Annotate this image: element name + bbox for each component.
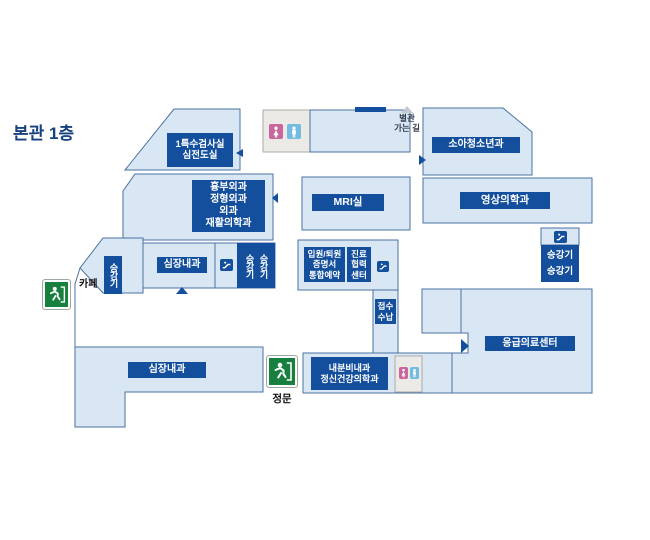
label-mri: MRI실 — [312, 194, 384, 211]
label-cardiology-upper: 심장내과 — [157, 257, 207, 273]
male-restroom-icon — [287, 124, 301, 139]
female-restroom-icon — [399, 367, 408, 379]
floor-map: 본관 1층 1특수검사실 심전도실 흉부외과 정형외과 외과 재활의학과 심장내… — [0, 0, 650, 540]
label-admission: 입원/퇴원 증명서 통합예약 — [304, 247, 345, 282]
emergency-exit-icon — [43, 280, 70, 309]
escalator-icon — [377, 261, 389, 272]
emergency-exit-icon — [267, 356, 297, 387]
escalator-icon — [554, 231, 567, 243]
label-main-gate: 정문 — [267, 391, 297, 406]
page-title: 본관 1층 — [13, 119, 74, 144]
female-restroom-icon — [269, 124, 283, 139]
label-pediatrics: 소아청소년과 — [432, 137, 520, 153]
room-cardiology-lower — [75, 347, 263, 427]
label-elevator-vertical: 승강기 — [104, 256, 122, 294]
label-cooperation: 진료 협력 센터 — [347, 247, 371, 282]
label-elevator-right: 승강기 승강기 — [541, 245, 579, 282]
label-cafe: 카페 — [79, 275, 97, 290]
room-unlabeled — [422, 289, 461, 333]
label-reception: 접수 수납 — [375, 299, 396, 324]
label-surgery: 흉부외과 정형외과 외과 재활의학과 — [192, 180, 265, 232]
label-annex-path: 별관 가는 길 — [389, 113, 425, 133]
label-cardiology-lower: 심장내과 — [128, 362, 206, 378]
stair-notch — [355, 107, 386, 112]
label-special-exam: 1특수검사실 심전도실 — [167, 133, 233, 167]
escalator-icon — [220, 259, 233, 271]
label-radiology: 영상의학과 — [460, 192, 550, 209]
male-restroom-icon — [410, 367, 419, 379]
label-emergency: 응급의료센터 — [485, 336, 575, 351]
label-endocrine: 내분비내과 정신건강의학과 — [311, 357, 388, 390]
label-elevator-double: 승강기 승강기 — [237, 243, 275, 288]
